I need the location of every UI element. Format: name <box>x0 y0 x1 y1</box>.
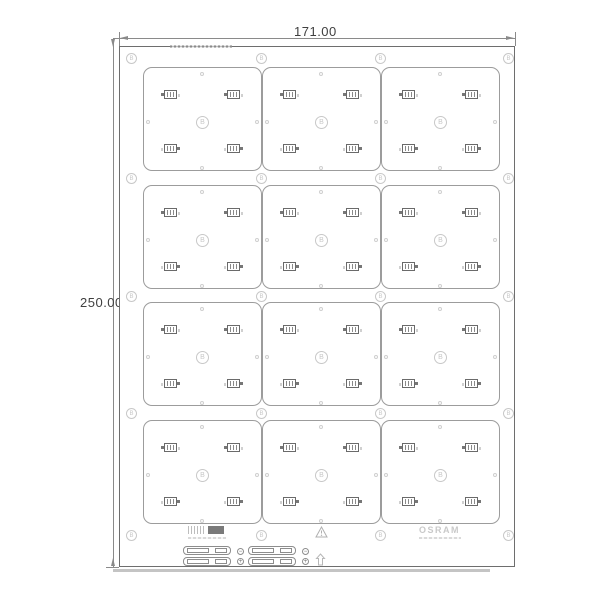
rail-fiducial: B <box>503 173 514 184</box>
polarity-tick <box>343 93 346 96</box>
polarity-tick <box>462 446 465 449</box>
polarity-plus-icon: + <box>237 558 244 565</box>
polarity-tick <box>399 328 402 331</box>
pad-mark <box>297 94 299 97</box>
pad-mark <box>297 329 299 332</box>
led-pads <box>167 210 174 215</box>
tooling-hole <box>319 166 323 170</box>
polarity-tick <box>415 500 418 503</box>
pad-mark <box>343 148 345 151</box>
led-pads <box>167 92 174 97</box>
led-pads <box>349 146 356 151</box>
pcb-board: B <box>262 420 381 524</box>
polarity-tick <box>399 446 402 449</box>
tooling-hole <box>200 72 204 76</box>
led-pads <box>405 381 412 386</box>
polarity-tick <box>415 147 418 150</box>
led-footprint <box>227 325 240 334</box>
tooling-hole <box>384 120 388 124</box>
tooling-hole <box>200 401 204 405</box>
tooling-hole <box>200 190 204 194</box>
pad-mark <box>479 94 481 97</box>
height-dimension-label: 250.00 <box>80 295 123 310</box>
pad-mark <box>360 212 362 215</box>
led-pads <box>230 499 237 504</box>
pad-mark <box>241 94 243 97</box>
pad-mark <box>224 501 226 504</box>
rail-fiducial: B <box>126 530 137 541</box>
led-pads <box>230 381 237 386</box>
polarity-tick <box>161 211 164 214</box>
led-pads <box>286 210 293 215</box>
pad-mark <box>416 447 418 450</box>
rail-fiducial: B <box>503 291 514 302</box>
tooling-hole <box>384 238 388 242</box>
pad-mark <box>280 148 282 151</box>
led-footprint <box>283 90 296 99</box>
led-footprint <box>227 144 240 153</box>
led-footprint <box>465 262 478 271</box>
tooling-hole <box>438 284 442 288</box>
pad-mark <box>297 447 299 450</box>
tooling-hole <box>374 473 378 477</box>
led-pads <box>349 264 356 269</box>
tooling-hole <box>319 72 323 76</box>
led-pads <box>286 327 293 332</box>
led-pads <box>405 92 412 97</box>
led-pads <box>468 210 475 215</box>
polarity-tick <box>224 446 227 449</box>
led-footprint <box>164 144 177 153</box>
pcb-board: B <box>262 185 381 289</box>
led-footprint <box>346 262 359 271</box>
led-pads <box>405 264 412 269</box>
pad-mark <box>479 212 481 215</box>
tooling-hole <box>493 238 497 242</box>
board-marker: B <box>196 234 209 247</box>
rail-fiducial: B <box>256 291 267 302</box>
rail-fiducial: B <box>503 530 514 541</box>
led-footprint <box>465 379 478 388</box>
polarity-tick <box>478 500 481 503</box>
led-pads <box>167 146 174 151</box>
led-footprint <box>283 208 296 217</box>
pad-mark <box>360 94 362 97</box>
tooling-hole <box>319 401 323 405</box>
tooling-hole <box>265 238 269 242</box>
led-footprint <box>283 443 296 452</box>
part-number-smudge <box>170 45 232 48</box>
led-pads <box>230 146 237 151</box>
polarity-tick <box>462 211 465 214</box>
led-footprint <box>164 443 177 452</box>
tooling-hole <box>374 120 378 124</box>
tooling-hole <box>493 473 497 477</box>
polarity-tick <box>399 211 402 214</box>
led-footprint <box>227 497 240 506</box>
led-footprint <box>164 262 177 271</box>
board-marker: B <box>434 234 447 247</box>
led-footprint <box>346 208 359 217</box>
polarity-tick <box>177 147 180 150</box>
tooling-hole <box>200 425 204 429</box>
led-pads <box>286 499 293 504</box>
pad-mark <box>178 212 180 215</box>
pad-mark <box>224 148 226 151</box>
board-marker: B <box>315 234 328 247</box>
board-marker: B <box>434 469 447 482</box>
tooling-hole <box>384 355 388 359</box>
width-dimension-label: 171.00 <box>294 24 337 39</box>
pcb-board: B <box>143 67 262 171</box>
board-marker: B <box>434 116 447 129</box>
polarity-tick <box>478 265 481 268</box>
pad-mark <box>161 148 163 151</box>
polarity-tick <box>359 147 362 150</box>
led-footprint <box>283 497 296 506</box>
pcb-board: B <box>143 302 262 406</box>
polarity-tick <box>296 265 299 268</box>
led-pads <box>349 499 356 504</box>
connector <box>183 546 231 555</box>
tooling-hole <box>438 401 442 405</box>
extension-line-top-right <box>515 32 516 46</box>
rail-fiducial: B <box>256 173 267 184</box>
tooling-hole <box>255 355 259 359</box>
polarity-tick <box>415 265 418 268</box>
pcb-board: B <box>381 302 500 406</box>
led-pads <box>286 146 293 151</box>
pad-mark <box>280 501 282 504</box>
led-footprint <box>465 144 478 153</box>
connector <box>183 557 231 566</box>
tooling-hole <box>319 190 323 194</box>
led-pads <box>405 327 412 332</box>
polarity-tick <box>296 382 299 385</box>
polarity-tick <box>343 328 346 331</box>
polarity-tick <box>359 265 362 268</box>
board-marker: B <box>315 469 328 482</box>
rail-fiducial: B <box>375 53 386 64</box>
pcb-board: B <box>262 302 381 406</box>
polarity-minus-icon: − <box>237 548 244 555</box>
rail-fiducial: B <box>375 291 386 302</box>
polarity-tick <box>280 93 283 96</box>
tooling-hole <box>319 519 323 523</box>
tooling-hole <box>374 238 378 242</box>
led-pads <box>349 381 356 386</box>
led-footprint <box>227 90 240 99</box>
led-pads <box>405 210 412 215</box>
led-pads <box>167 445 174 450</box>
led-footprint <box>346 497 359 506</box>
polarity-tick <box>224 328 227 331</box>
rail-fiducial: B <box>126 408 137 419</box>
led-footprint <box>465 497 478 506</box>
pcb-board: B <box>381 67 500 171</box>
extension-line-bottom-left <box>106 567 119 568</box>
led-footprint <box>227 262 240 271</box>
pad-mark <box>224 266 226 269</box>
polarity-tick <box>478 382 481 385</box>
led-pads <box>349 210 356 215</box>
led-footprint <box>283 379 296 388</box>
polarity-tick <box>415 382 418 385</box>
tooling-hole <box>493 120 497 124</box>
pcb-panel-drawing: 171.00 250.00 BBBBBBBBBBBBBBBBBBBBBBBBBB… <box>0 0 600 600</box>
led-footprint <box>465 443 478 452</box>
led-pads <box>286 445 293 450</box>
polarity-minus-icon: − <box>302 548 309 555</box>
polarity-tick <box>224 93 227 96</box>
pad-mark <box>178 94 180 97</box>
polarity-tick <box>224 211 227 214</box>
led-pads <box>405 499 412 504</box>
pad-mark <box>241 329 243 332</box>
tooling-hole <box>493 355 497 359</box>
polarity-tick <box>161 446 164 449</box>
led-footprint <box>465 325 478 334</box>
pcb-board: B <box>143 185 262 289</box>
pad-mark <box>241 212 243 215</box>
pcb-board: B <box>262 67 381 171</box>
board-marker: B <box>315 351 328 364</box>
led-pads <box>349 327 356 332</box>
tooling-hole <box>319 284 323 288</box>
led-footprint <box>402 443 415 452</box>
rail-fiducial: B <box>375 408 386 419</box>
tooling-hole <box>255 473 259 477</box>
tooling-hole <box>146 238 150 242</box>
polarity-tick <box>343 211 346 214</box>
led-footprint <box>402 325 415 334</box>
board-marker: B <box>196 116 209 129</box>
pad-mark <box>360 447 362 450</box>
led-pads <box>230 327 237 332</box>
pad-mark <box>343 383 345 386</box>
board-marker: B <box>434 351 447 364</box>
led-footprint <box>402 208 415 217</box>
led-footprint <box>164 379 177 388</box>
polarity-tick <box>462 328 465 331</box>
connector <box>248 557 296 566</box>
tooling-hole <box>255 120 259 124</box>
tooling-hole <box>265 355 269 359</box>
led-footprint <box>346 379 359 388</box>
rail-fiducial: B <box>503 408 514 419</box>
led-footprint <box>283 144 296 153</box>
tooling-hole <box>384 473 388 477</box>
manufacturer-logo-subtext <box>188 537 226 539</box>
board-marker: B <box>315 116 328 129</box>
tooling-hole <box>146 473 150 477</box>
pad-mark <box>178 329 180 332</box>
led-pads <box>167 381 174 386</box>
led-footprint <box>346 443 359 452</box>
led-pads <box>230 264 237 269</box>
tooling-hole <box>438 425 442 429</box>
pad-mark <box>399 501 401 504</box>
pad-mark <box>343 266 345 269</box>
led-pads <box>167 327 174 332</box>
led-pads <box>468 146 475 151</box>
led-pads <box>167 499 174 504</box>
pad-mark <box>462 501 464 504</box>
led-footprint <box>402 497 415 506</box>
led-pads <box>405 146 412 151</box>
led-pads <box>468 264 475 269</box>
pad-mark <box>416 94 418 97</box>
pad-mark <box>399 148 401 151</box>
pad-mark <box>224 383 226 386</box>
pad-mark <box>416 212 418 215</box>
osram-logo: OSRAM <box>419 525 460 535</box>
pad-mark <box>297 212 299 215</box>
led-pads <box>468 92 475 97</box>
tooling-hole <box>438 190 442 194</box>
tooling-hole <box>265 120 269 124</box>
led-pads <box>230 92 237 97</box>
dim-arrow-right <box>506 36 514 40</box>
led-footprint <box>164 208 177 217</box>
polarity-tick <box>177 500 180 503</box>
tooling-hole <box>146 355 150 359</box>
polarity-tick <box>177 382 180 385</box>
pad-mark <box>462 266 464 269</box>
pad-mark <box>343 501 345 504</box>
pad-mark <box>399 266 401 269</box>
rail-fiducial: B <box>126 173 137 184</box>
led-pads <box>167 264 174 269</box>
tooling-hole <box>255 238 259 242</box>
tooling-hole <box>374 355 378 359</box>
polarity-tick <box>161 93 164 96</box>
polarity-tick <box>177 265 180 268</box>
led-pads <box>286 264 293 269</box>
tooling-hole <box>319 425 323 429</box>
polarity-plus-icon: + <box>302 558 309 565</box>
pad-mark <box>161 266 163 269</box>
tooling-hole <box>146 120 150 124</box>
pad-mark <box>241 447 243 450</box>
led-footprint <box>346 144 359 153</box>
rail-fiducial: B <box>256 530 267 541</box>
led-footprint <box>465 208 478 217</box>
led-pads <box>286 381 293 386</box>
led-pads <box>468 499 475 504</box>
polarity-tick <box>161 328 164 331</box>
panel-shadow-bar <box>113 569 490 572</box>
led-footprint <box>402 379 415 388</box>
pad-mark <box>161 383 163 386</box>
led-pads <box>349 92 356 97</box>
polarity-tick <box>296 147 299 150</box>
led-pads <box>230 445 237 450</box>
pad-mark <box>462 383 464 386</box>
polarity-tick <box>359 382 362 385</box>
tooling-hole <box>438 72 442 76</box>
polarity-tick <box>478 147 481 150</box>
polarity-tick <box>343 446 346 449</box>
pcb-board: B <box>381 185 500 289</box>
polarity-tick <box>280 211 283 214</box>
polarity-tick <box>359 500 362 503</box>
led-pads <box>349 445 356 450</box>
osram-logo-subtext <box>419 537 461 539</box>
led-pads <box>468 381 475 386</box>
led-footprint <box>164 90 177 99</box>
tooling-hole <box>438 166 442 170</box>
polarity-tick <box>240 265 243 268</box>
dim-arrow-left <box>120 36 128 40</box>
polarity-tick <box>296 500 299 503</box>
led-footprint <box>283 262 296 271</box>
led-pads <box>405 445 412 450</box>
led-footprint <box>164 325 177 334</box>
led-footprint <box>402 90 415 99</box>
dim-arrow-up <box>111 39 115 47</box>
tooling-hole <box>438 307 442 311</box>
led-footprint <box>164 497 177 506</box>
led-footprint <box>227 379 240 388</box>
led-footprint <box>402 262 415 271</box>
rail-fiducial: B <box>126 53 137 64</box>
warning-triangle-icon <box>315 526 328 538</box>
dim-arrow-down <box>111 558 115 566</box>
led-footprint <box>227 443 240 452</box>
polarity-tick <box>240 382 243 385</box>
manufacturer-logo-block <box>208 526 224 534</box>
polarity-tick <box>399 93 402 96</box>
pad-mark <box>416 329 418 332</box>
polarity-tick <box>240 500 243 503</box>
tooling-hole <box>319 307 323 311</box>
polarity-tick <box>462 93 465 96</box>
led-footprint <box>227 208 240 217</box>
led-pads <box>468 445 475 450</box>
connector <box>248 546 296 555</box>
pad-mark <box>360 329 362 332</box>
rail-fiducial: B <box>503 53 514 64</box>
pad-mark <box>479 447 481 450</box>
led-pads <box>468 327 475 332</box>
led-footprint <box>283 325 296 334</box>
tooling-hole <box>265 473 269 477</box>
polarity-tick <box>280 446 283 449</box>
board-marker: B <box>196 351 209 364</box>
pcb-board: B <box>381 420 500 524</box>
tooling-hole <box>200 166 204 170</box>
pad-mark <box>479 329 481 332</box>
pad-mark <box>178 447 180 450</box>
rail-fiducial: B <box>256 408 267 419</box>
tooling-hole <box>200 284 204 288</box>
led-footprint <box>465 90 478 99</box>
up-arrow-icon <box>315 553 326 566</box>
led-pads <box>230 210 237 215</box>
tooling-hole <box>200 307 204 311</box>
pad-mark <box>280 383 282 386</box>
polarity-tick <box>280 328 283 331</box>
pad-mark <box>280 266 282 269</box>
pcb-board: B <box>143 420 262 524</box>
polarity-tick <box>240 147 243 150</box>
rail-fiducial: B <box>375 173 386 184</box>
led-footprint <box>346 90 359 99</box>
rail-fiducial: B <box>256 53 267 64</box>
rail-fiducial: B <box>375 530 386 541</box>
rail-fiducial: B <box>126 291 137 302</box>
